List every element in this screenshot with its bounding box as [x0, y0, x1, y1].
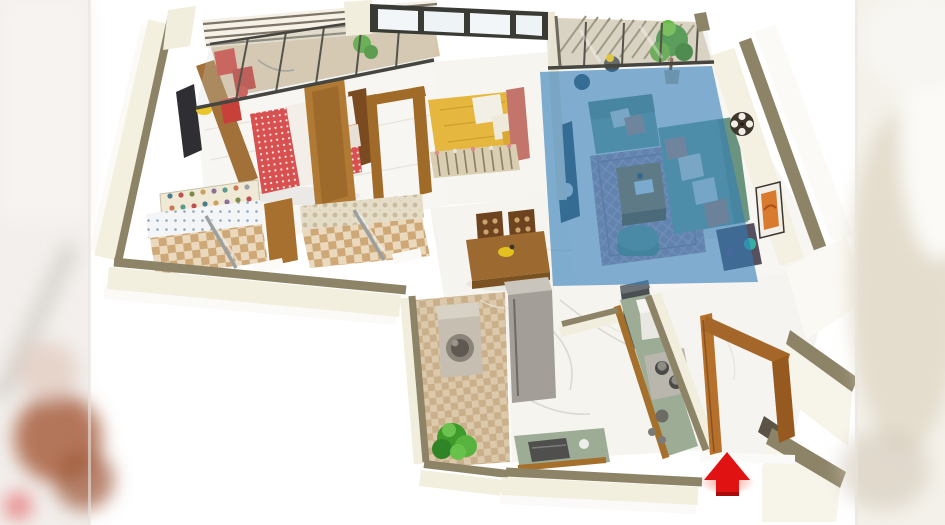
jar	[658, 436, 666, 444]
jar	[648, 428, 656, 436]
bathroom-door	[264, 198, 298, 266]
arrow-base-shade	[716, 492, 739, 496]
kitchen-sink	[528, 438, 570, 462]
screenshot-root	[0, 0, 945, 525]
room-bedroom-2	[428, 87, 530, 178]
kettle	[656, 410, 669, 423]
glass-tint	[548, 20, 714, 68]
washing-machine	[436, 302, 483, 378]
bowl-item	[510, 245, 515, 250]
refrigerator	[504, 277, 556, 403]
wall-pillar	[344, 0, 372, 36]
floor-plan-image	[0, 0, 945, 525]
wall-picture	[756, 182, 784, 238]
dish	[579, 439, 589, 449]
wall-clock	[730, 112, 754, 136]
